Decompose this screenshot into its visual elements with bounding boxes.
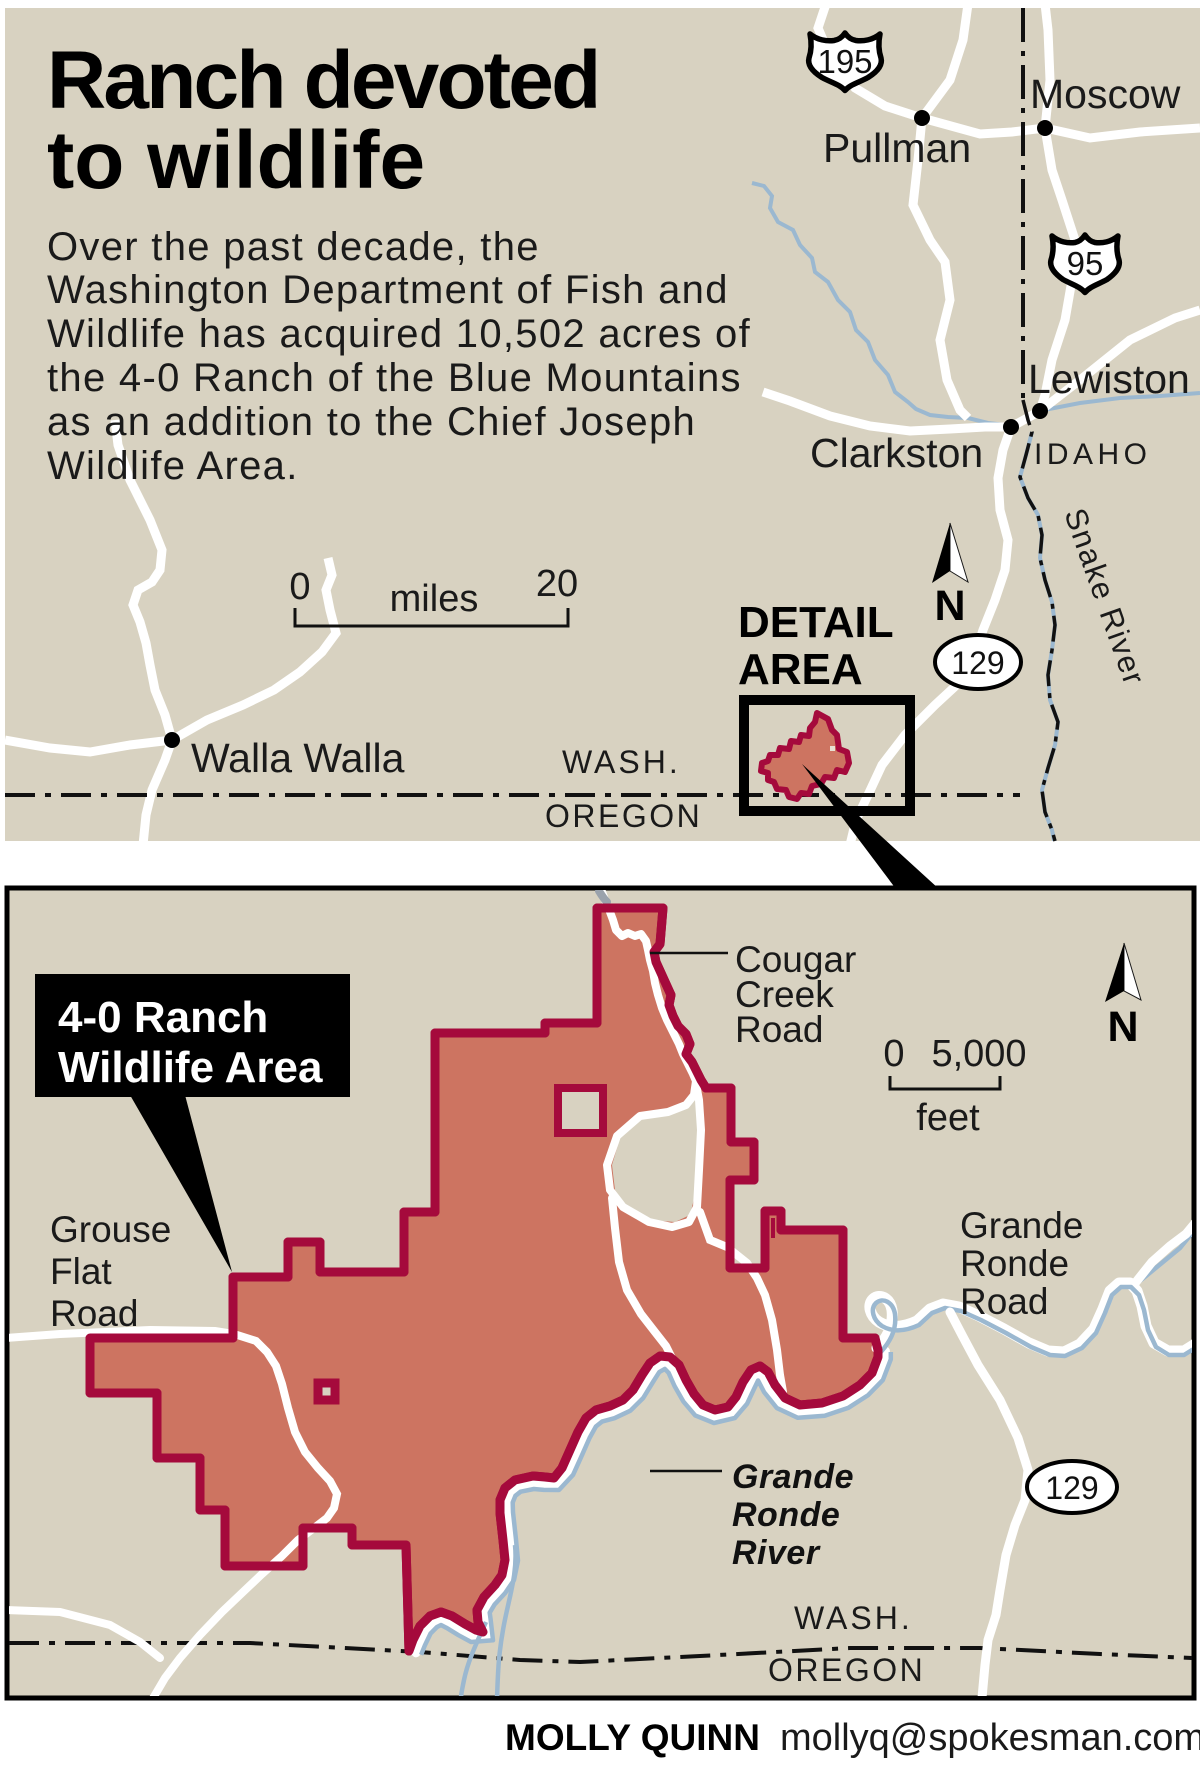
svg-text:mollyq@spokesman.com: mollyq@spokesman.com	[780, 1717, 1200, 1759]
svg-text:N: N	[934, 582, 965, 630]
svg-text:Wildlife Area: Wildlife Area	[58, 1043, 323, 1092]
svg-text:to wildlife: to wildlife	[47, 115, 425, 206]
svg-text:Over the past decade, the: Over the past decade, the	[47, 225, 540, 269]
svg-text:129: 129	[1045, 1470, 1098, 1506]
svg-text:Wildlife has acquired 10,502 a: Wildlife has acquired 10,502 acres of	[47, 312, 751, 356]
svg-text:N: N	[1107, 1003, 1138, 1051]
svg-text:MOLLY QUINN: MOLLY QUINN	[505, 1717, 760, 1758]
svg-text:IDAHO: IDAHO	[1034, 438, 1152, 471]
svg-text:WASH.: WASH.	[562, 744, 681, 780]
svg-text:Wildlife Area.: Wildlife Area.	[47, 444, 299, 488]
svg-text:the 4-0 Ranch of the Blue Moun: the 4-0 Ranch of the Blue Mountains	[47, 356, 742, 400]
svg-text:Flat: Flat	[50, 1251, 112, 1292]
svg-text:Grande: Grande	[732, 1458, 854, 1496]
svg-text:Washington Department of Fish: Washington Department of Fish and	[47, 268, 729, 312]
svg-text:129: 129	[951, 645, 1004, 681]
svg-text:Road: Road	[960, 1281, 1048, 1322]
svg-text:4-0 Ranch: 4-0 Ranch	[58, 993, 268, 1042]
svg-text:95: 95	[1067, 245, 1104, 282]
svg-text:Clarkston: Clarkston	[810, 430, 983, 476]
svg-text:miles: miles	[390, 578, 479, 620]
svg-text:OREGON: OREGON	[768, 1652, 925, 1688]
svg-text:DETAIL: DETAIL	[738, 598, 894, 647]
svg-text:WASH.: WASH.	[794, 1600, 913, 1636]
svg-text:20: 20	[536, 563, 578, 605]
svg-text:OREGON: OREGON	[545, 798, 702, 834]
svg-text:5,000: 5,000	[931, 1033, 1026, 1075]
svg-text:River: River	[732, 1534, 821, 1572]
svg-text:0: 0	[883, 1033, 904, 1075]
svg-text:Grande: Grande	[960, 1205, 1083, 1246]
svg-text:AREA: AREA	[738, 645, 863, 694]
svg-text:0: 0	[289, 566, 310, 608]
svg-text:Road: Road	[50, 1293, 138, 1334]
svg-text:Lewiston: Lewiston	[1028, 356, 1190, 402]
svg-text:Pullman: Pullman	[823, 125, 971, 171]
svg-text:Ronde: Ronde	[732, 1496, 840, 1534]
svg-text:Ranch devoted: Ranch devoted	[47, 35, 598, 126]
svg-text:Moscow: Moscow	[1030, 71, 1181, 117]
svg-text:Walla Walla: Walla Walla	[191, 735, 405, 781]
svg-text:Road: Road	[735, 1009, 823, 1050]
svg-text:Ronde: Ronde	[960, 1243, 1069, 1284]
svg-text:Grouse: Grouse	[50, 1209, 171, 1250]
svg-text:feet: feet	[916, 1097, 980, 1139]
svg-text:195: 195	[817, 43, 872, 80]
svg-text:as an addition to the Chief Jo: as an addition to the Chief Joseph	[47, 400, 696, 444]
